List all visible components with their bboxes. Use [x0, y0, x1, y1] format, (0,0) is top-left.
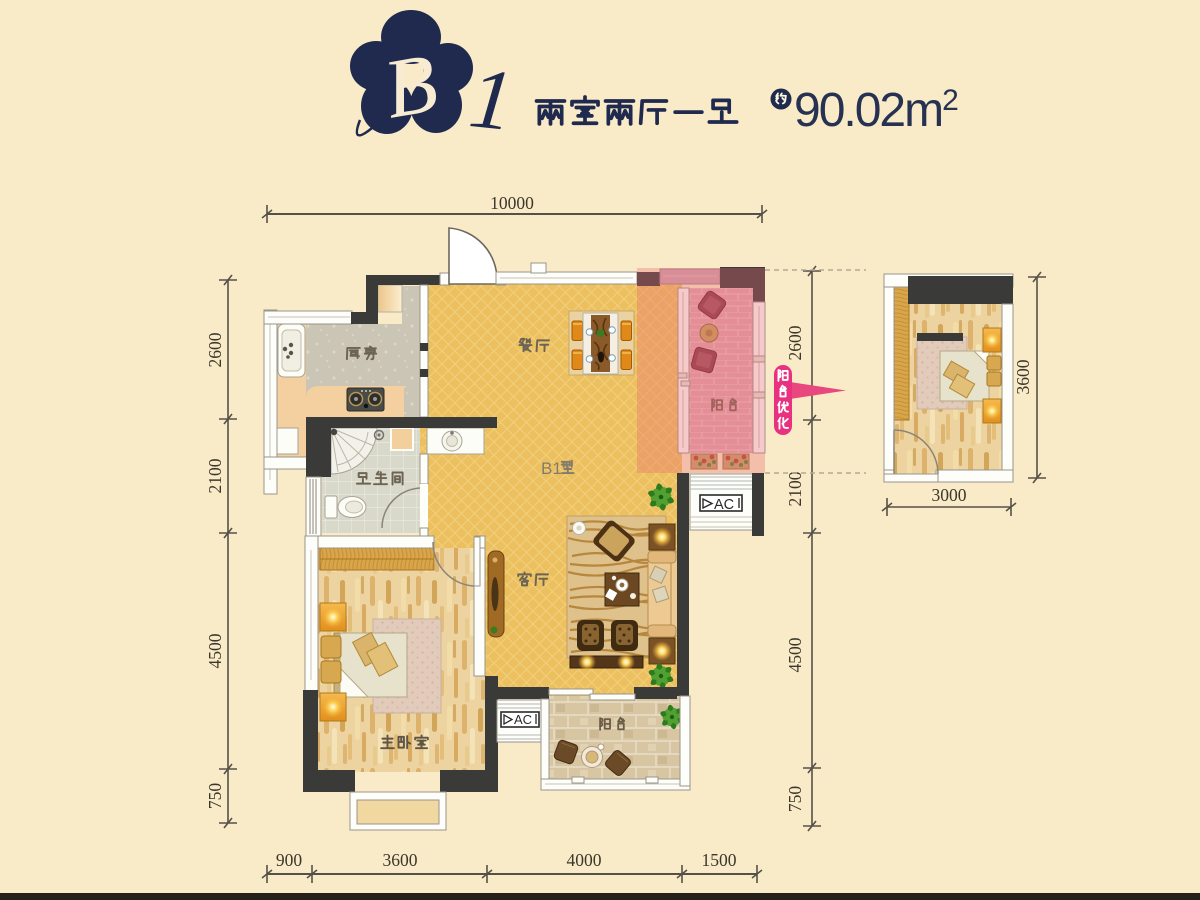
- svg-text:2100: 2100: [785, 471, 805, 506]
- svg-text:900: 900: [276, 850, 303, 870]
- svg-text:750: 750: [205, 783, 225, 810]
- svg-text:2600: 2600: [205, 332, 225, 367]
- svg-text:3600: 3600: [1013, 359, 1033, 394]
- svg-text:750: 750: [785, 786, 805, 813]
- svg-text:90.02m2: 90.02m2: [794, 84, 958, 137]
- svg-text:10000: 10000: [490, 193, 534, 213]
- svg-text:AC: AC: [514, 712, 532, 727]
- svg-text:AC: AC: [714, 497, 734, 513]
- svg-text:1500: 1500: [702, 850, 737, 870]
- svg-text:2600: 2600: [785, 325, 805, 360]
- svg-text:3600: 3600: [383, 850, 418, 870]
- svg-text:B1: B1: [541, 459, 562, 478]
- svg-text:3000: 3000: [932, 485, 967, 505]
- svg-text:4500: 4500: [785, 637, 805, 672]
- svg-text:4500: 4500: [205, 633, 225, 668]
- svg-text:4000: 4000: [567, 850, 602, 870]
- svg-text:2100: 2100: [205, 458, 225, 493]
